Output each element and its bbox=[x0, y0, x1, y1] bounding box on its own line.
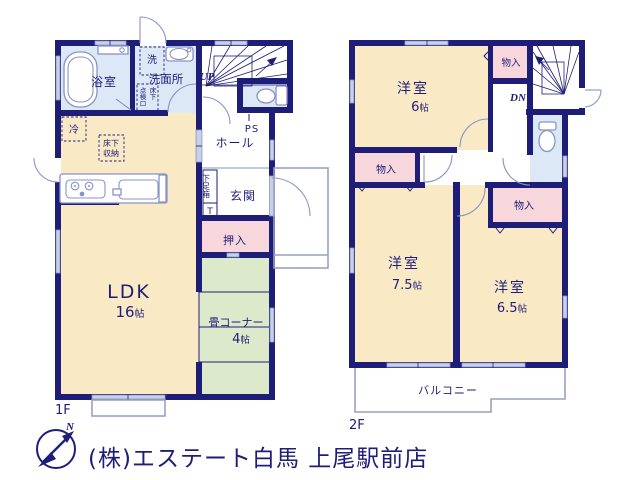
compass-icon: N bbox=[37, 421, 75, 468]
dn-label: DN bbox=[509, 92, 527, 104]
toilet-icon-2f bbox=[539, 122, 556, 152]
hatch-label-col1: 点検口 bbox=[138, 87, 146, 107]
washer-label: 洗 bbox=[147, 54, 157, 66]
ldk-size-unit: 帖 bbox=[135, 307, 145, 320]
bedroom3-size-unit: 帖 bbox=[518, 303, 528, 315]
stairs-down-icon bbox=[533, 46, 579, 94]
bathroom-label: 浴室 bbox=[91, 74, 117, 89]
shoebox-t-label: T bbox=[206, 207, 213, 217]
tatami-size-unit: 帖 bbox=[240, 334, 250, 346]
up-label: UP bbox=[200, 71, 215, 83]
tatami-size-label: 4帖 bbox=[232, 332, 250, 347]
bedroom3-size-num: 6.5 bbox=[497, 301, 518, 316]
bedroom2-label: 洋室 bbox=[388, 255, 420, 272]
underfloor-label-1: 床下 bbox=[103, 138, 119, 148]
hatch-label-col2: 床下 bbox=[148, 86, 156, 102]
bedroom2-size-num: 7.5 bbox=[392, 278, 413, 293]
kitchen-counter-icon bbox=[60, 174, 167, 203]
floor2-label: 2F bbox=[349, 418, 365, 433]
ps-label: PS bbox=[245, 124, 259, 135]
bedroom1-label: 洋室 bbox=[397, 80, 429, 97]
balcony-label: バルコニー bbox=[418, 384, 478, 397]
bedroom2-size: 7.5帖 bbox=[392, 278, 423, 293]
bedroom1-size: 6帖 bbox=[411, 100, 429, 115]
compass-north-label: N bbox=[65, 421, 75, 433]
fridge-label: 冷 bbox=[69, 123, 79, 136]
washroom-label: 洗面所 bbox=[149, 72, 184, 86]
floorplan-image: 浴室 洗 洗面所 点検口 床下 冷 床下 収納 UP PS ホール 下足箱 T … bbox=[0, 0, 640, 480]
floor1-label: 1F bbox=[55, 403, 71, 418]
bedroom1-size-num: 6 bbox=[411, 100, 419, 115]
bedroom1-size-unit: 帖 bbox=[419, 102, 429, 114]
closet-left-label: 物入 bbox=[376, 163, 396, 176]
underfloor-label-2: 収納 bbox=[103, 148, 119, 158]
washbasin-icon bbox=[166, 47, 193, 61]
floor-1-plan: 浴室 洗 洗面所 点検口 床下 冷 床下 収納 UP PS ホール 下足箱 T … bbox=[34, 17, 328, 418]
entrance-label: 玄関 bbox=[230, 188, 256, 203]
shoebox-label: 下足箱 bbox=[202, 174, 211, 199]
tatami-size-num: 4 bbox=[232, 332, 240, 347]
closet-right-label: 物入 bbox=[514, 199, 534, 212]
hall-label: ホール bbox=[215, 136, 254, 150]
oshiire-label: 押入 bbox=[223, 233, 247, 247]
bedroom2-size-unit: 帖 bbox=[413, 280, 423, 292]
closet-top-label: 物入 bbox=[501, 57, 521, 69]
ldk-label: LDK bbox=[107, 281, 151, 303]
company-name: (株)エステート白馬 上尾駅前店 bbox=[88, 446, 428, 472]
floor-2-plan: 洋室 6帖 物入 DN 物入 物入 洋室 7.5帖 洋室 6.5帖 バルコニー … bbox=[349, 40, 601, 433]
floorplan-page: 浴室 洗 洗面所 点検口 床下 冷 床下 収納 UP PS ホール 下足箱 T … bbox=[0, 0, 640, 480]
tatami-label: 畳コーナー bbox=[209, 316, 264, 329]
bedroom3-label: 洋室 bbox=[494, 279, 526, 296]
bedroom3-size: 6.5帖 bbox=[497, 301, 528, 316]
ldk-size-num: 16 bbox=[115, 303, 134, 321]
